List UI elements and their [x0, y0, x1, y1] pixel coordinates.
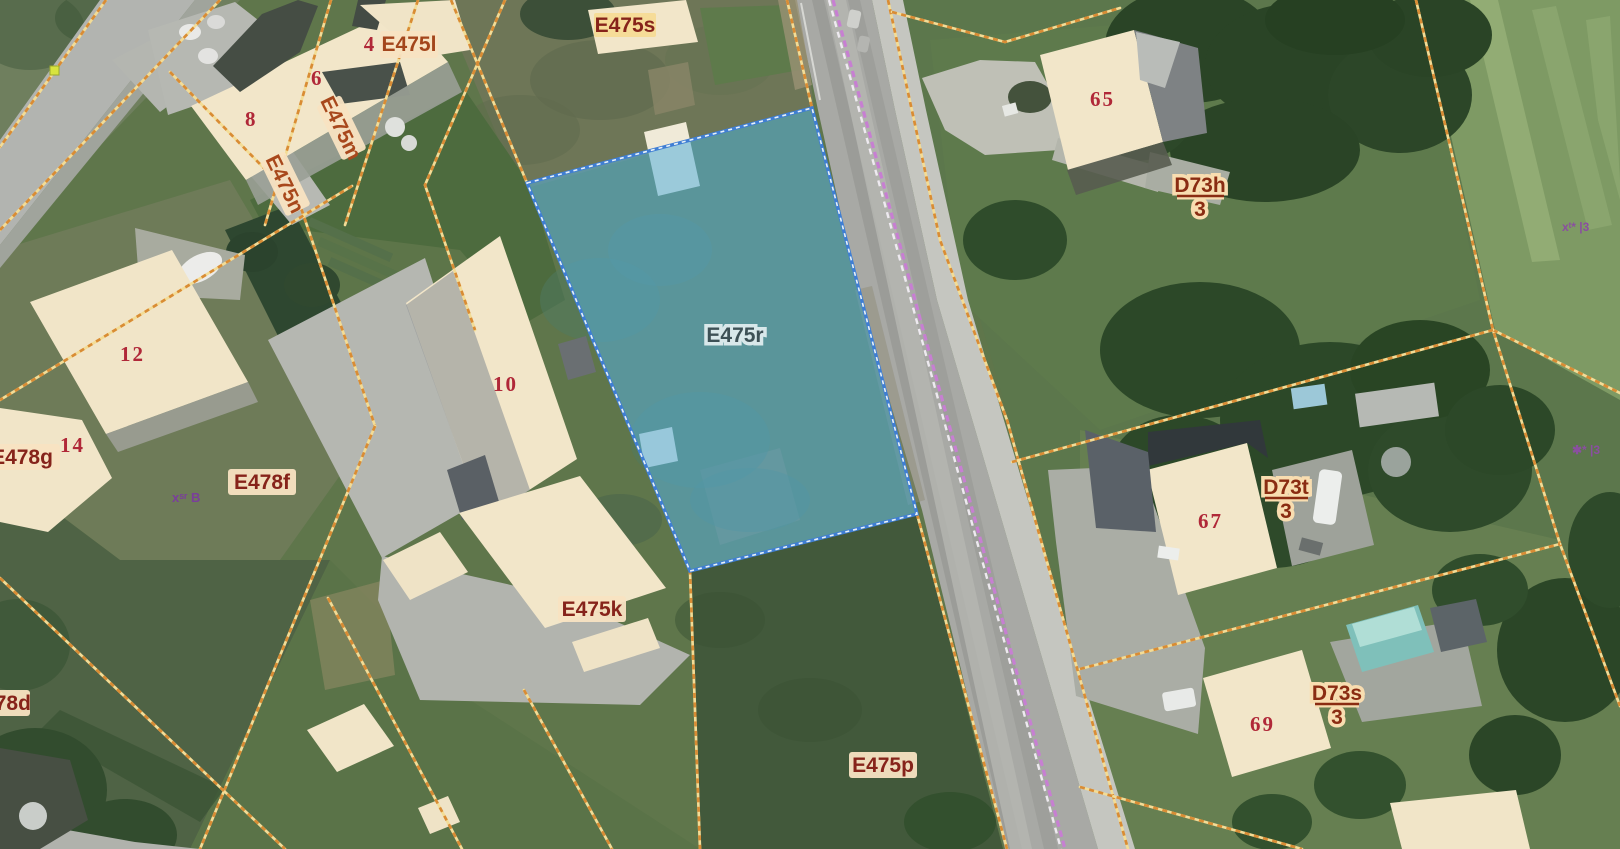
svg-text:3: 3 [1280, 500, 1292, 523]
svg-text:12: 12 [120, 342, 145, 366]
svg-text:E475r: E475r [706, 324, 763, 347]
svg-text:E475s: E475s [595, 14, 656, 37]
svg-text:10: 10 [493, 372, 518, 396]
svg-text:E475l: E475l [382, 33, 437, 56]
svg-text:✱* |3: ✱* |3 [1572, 443, 1600, 457]
svg-text:8: 8 [245, 107, 258, 131]
svg-text:14: 14 [60, 433, 85, 457]
svg-text:67: 67 [1198, 509, 1223, 533]
svg-text:E475p: E475p [852, 754, 914, 777]
svg-text:3: 3 [1194, 198, 1206, 221]
svg-text:xᵗ* |3: xᵗ* |3 [1562, 220, 1590, 234]
svg-text:4: 4 [364, 32, 377, 56]
svg-text:65: 65 [1090, 87, 1115, 111]
svg-text:3: 3 [1331, 706, 1343, 729]
svg-text:6: 6 [311, 66, 324, 90]
svg-text:69: 69 [1250, 712, 1275, 736]
svg-text:E475k: E475k [562, 598, 623, 621]
svg-text:E478d: E478d [0, 692, 31, 715]
svg-text:xˢʳ B: xˢʳ B [172, 490, 200, 505]
svg-text:E478g: E478g [0, 446, 53, 469]
svg-text:E478f: E478f [234, 471, 291, 494]
